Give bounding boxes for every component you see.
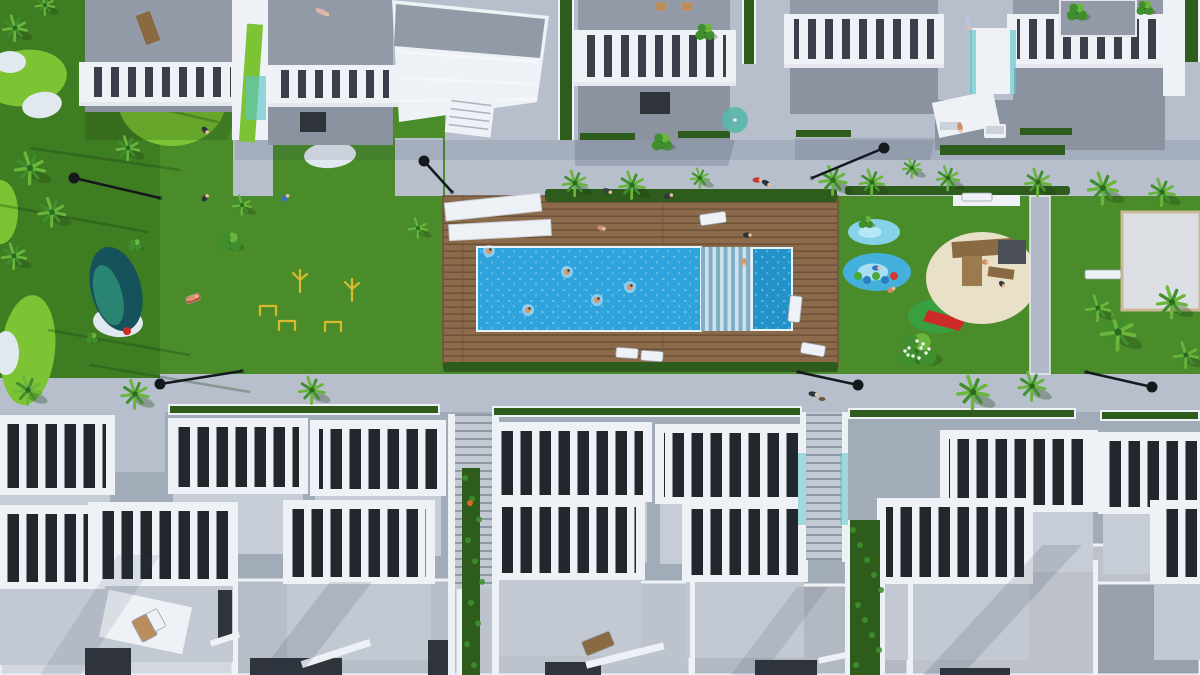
caterpillar-play-toy bbox=[863, 276, 871, 284]
rooftop bbox=[790, 0, 938, 14]
bush-foliage bbox=[1137, 7, 1145, 15]
bush-foliage bbox=[219, 240, 230, 251]
palm-crown bbox=[49, 209, 55, 215]
caterpillar-play-toy bbox=[872, 272, 880, 280]
terrace bbox=[268, 103, 393, 145]
bush-foliage bbox=[654, 134, 663, 143]
palm-crown bbox=[910, 166, 914, 170]
person-head bbox=[748, 233, 752, 237]
red-ball bbox=[123, 327, 131, 335]
townhouse-pergola-row1-slats bbox=[949, 439, 1089, 505]
parasol-pole bbox=[733, 118, 737, 122]
townhouse-pergola-row2-slats bbox=[691, 509, 799, 575]
person-head bbox=[877, 266, 881, 270]
bush-foliage bbox=[86, 337, 92, 343]
sun-lounger bbox=[641, 350, 664, 362]
road-planter-hedge bbox=[170, 406, 438, 413]
hedge-strip-vertical bbox=[1185, 0, 1198, 62]
hedge-strip bbox=[580, 133, 635, 140]
outdoor-stairs bbox=[445, 92, 496, 137]
lamp-head bbox=[155, 379, 166, 390]
row2-roof bbox=[497, 576, 641, 656]
townhouse-pergola-row1-slats bbox=[664, 433, 799, 497]
lamp-head bbox=[69, 173, 80, 184]
bush-foliage bbox=[695, 30, 705, 40]
row2-roof bbox=[1154, 580, 1200, 660]
palm-crown bbox=[629, 182, 634, 187]
palm-crown bbox=[1169, 299, 1175, 305]
person-head bbox=[986, 260, 990, 264]
palm-crown bbox=[240, 203, 244, 207]
townhouse-pergola-row1-slats bbox=[177, 427, 299, 487]
white-flower bbox=[921, 342, 924, 345]
sofa-cushion bbox=[940, 122, 958, 130]
stairwell-wall bbox=[845, 520, 850, 675]
swimmer-head bbox=[489, 248, 491, 250]
glass-balustrade bbox=[970, 30, 976, 94]
bush-foliage bbox=[130, 240, 136, 246]
lamp-base bbox=[158, 196, 162, 200]
orange-flower bbox=[467, 500, 473, 506]
scene-canvas bbox=[0, 0, 1200, 675]
palm-crown bbox=[1029, 383, 1035, 389]
stairwell-plant bbox=[475, 620, 481, 626]
main-pool-water-texture bbox=[477, 247, 701, 331]
white-flower bbox=[911, 354, 914, 357]
bush-foliage bbox=[1069, 4, 1078, 13]
stairwell-plant bbox=[878, 587, 884, 593]
road-planter-hedge bbox=[850, 410, 1074, 417]
palm-crown bbox=[12, 25, 17, 30]
white-flower bbox=[924, 351, 927, 354]
palm-crown bbox=[869, 179, 874, 184]
townhouse-pergola-row1-slats bbox=[1107, 441, 1200, 507]
palm-crown bbox=[126, 146, 131, 151]
hedge-strip bbox=[1020, 128, 1072, 135]
townhouse-pergola-row2-slats bbox=[0, 514, 96, 582]
doorway-opening bbox=[640, 92, 670, 114]
white-wall bbox=[1163, 0, 1185, 96]
white-flower bbox=[919, 346, 922, 349]
bush-foliage bbox=[859, 221, 866, 228]
sun-lounger bbox=[788, 295, 803, 322]
palm-crown bbox=[970, 389, 976, 395]
caterpillar-play-toy bbox=[881, 276, 889, 284]
road-planter-hedge bbox=[494, 408, 800, 415]
stairwell-plant bbox=[479, 579, 485, 585]
stairwell-plant bbox=[871, 572, 877, 578]
lamp-head bbox=[1147, 382, 1158, 393]
palm-crown bbox=[43, 3, 47, 7]
roof-separator-wall bbox=[690, 582, 695, 675]
white-flower bbox=[907, 346, 910, 349]
rooftop bbox=[85, 0, 235, 62]
lamp-base bbox=[1084, 370, 1088, 374]
white-flower bbox=[906, 353, 909, 356]
bush-foliage bbox=[652, 140, 662, 150]
lamp-base bbox=[240, 369, 244, 373]
doorway-opening bbox=[300, 112, 326, 132]
building-shadow bbox=[85, 112, 235, 140]
stairwell-plant bbox=[864, 557, 870, 563]
pergola-slats bbox=[794, 19, 934, 59]
stairwell-plant bbox=[853, 662, 859, 668]
stairwell-plant bbox=[850, 527, 856, 533]
roof-separator-wall bbox=[1093, 560, 1098, 675]
pergola-slats bbox=[582, 35, 726, 77]
sun-lounger bbox=[655, 2, 667, 11]
caterpillar-play-toy bbox=[890, 272, 898, 280]
swimmer-head bbox=[567, 269, 569, 271]
aerial-render-residential-complex bbox=[0, 0, 1200, 675]
stairwell-plant bbox=[468, 600, 474, 606]
lamp-base bbox=[810, 176, 814, 180]
lamp-head bbox=[879, 143, 890, 154]
dark-opening bbox=[428, 640, 448, 675]
bush-foliage bbox=[1067, 10, 1077, 20]
hedge-strip-vertical bbox=[560, 0, 572, 140]
swimmer-head bbox=[597, 297, 599, 299]
road-planter-hedge bbox=[1102, 412, 1198, 419]
palm-crown bbox=[698, 176, 702, 180]
bush-foliage bbox=[88, 333, 93, 338]
bush-foliage bbox=[222, 233, 231, 242]
palm-crown bbox=[1183, 352, 1188, 357]
palm-crown bbox=[25, 387, 31, 393]
stairwell-plant bbox=[471, 662, 477, 668]
stairwell-plant bbox=[869, 632, 875, 638]
caterpillar-play-toy bbox=[854, 272, 862, 280]
lamp-base bbox=[796, 370, 800, 374]
bush-foliage bbox=[1139, 1, 1146, 8]
wooden-play-structure bbox=[998, 240, 1026, 264]
dark-opening bbox=[218, 590, 232, 638]
sofa-cushion bbox=[986, 126, 1004, 134]
person-head bbox=[759, 178, 763, 182]
glass-balustrade bbox=[1010, 30, 1016, 94]
palm-crown bbox=[11, 253, 16, 258]
stairwell-plant bbox=[462, 475, 468, 481]
townhouse-pergola-row1-slats bbox=[497, 431, 643, 495]
terrace bbox=[790, 64, 938, 114]
townhouse-pergola-row1-slats bbox=[0, 424, 106, 488]
palm-crown bbox=[830, 177, 836, 183]
stairwell-plant bbox=[465, 537, 471, 543]
sun-lounger bbox=[681, 2, 693, 11]
deck-hedge bbox=[443, 362, 838, 372]
hedge-strip bbox=[796, 130, 851, 137]
rooftop bbox=[268, 0, 393, 65]
palm-crown bbox=[27, 165, 33, 171]
white-flower bbox=[917, 356, 920, 359]
swimmer-head bbox=[528, 307, 530, 309]
townhouse-pergola-row2-slats bbox=[292, 509, 426, 577]
stairwell-plant bbox=[472, 558, 478, 564]
stair-glass-balustrade bbox=[840, 453, 848, 525]
white-flower bbox=[903, 349, 906, 352]
palm-crown bbox=[1159, 189, 1164, 194]
bush-foliage bbox=[128, 244, 135, 251]
white-wall bbox=[972, 28, 1014, 94]
garden-bench bbox=[1085, 270, 1121, 279]
white-flower bbox=[915, 339, 918, 342]
pergola-slats bbox=[272, 70, 389, 98]
townhouse-pergola-row2-slats bbox=[886, 507, 1024, 577]
stairwell-plant bbox=[857, 542, 863, 548]
sun-lounger bbox=[616, 347, 639, 359]
pergola-slats bbox=[89, 67, 231, 97]
pergola-sill bbox=[262, 103, 399, 107]
glass-balustrade bbox=[246, 76, 266, 120]
bush-foliage bbox=[698, 24, 706, 32]
stairwell-plant bbox=[464, 641, 470, 647]
stairwell-wall bbox=[448, 414, 455, 675]
pergola-sill bbox=[79, 102, 241, 106]
garden-bench bbox=[962, 193, 992, 201]
hedge-strip bbox=[678, 131, 730, 138]
pergola-sill bbox=[784, 64, 944, 68]
palm-crown bbox=[1035, 179, 1040, 184]
pergola-sill bbox=[572, 82, 736, 86]
stairwell-plant bbox=[855, 602, 861, 608]
kids-pool-water-texture bbox=[752, 248, 792, 330]
townhouse-pergola-row1-slats bbox=[319, 429, 437, 489]
stairwell-planting-strip bbox=[850, 520, 880, 675]
stairwell-plant bbox=[476, 517, 482, 523]
dog bbox=[819, 397, 826, 401]
palm-crown bbox=[946, 176, 951, 181]
swimmer-head bbox=[630, 284, 632, 286]
stairwell-plant bbox=[876, 647, 882, 653]
person-head bbox=[742, 263, 746, 267]
stairwell-steps bbox=[806, 412, 842, 560]
pergola-sill bbox=[1007, 64, 1171, 68]
bush-foliage bbox=[861, 216, 867, 222]
lamp-head bbox=[853, 380, 864, 391]
lamp-head bbox=[419, 156, 430, 167]
palm-crown bbox=[309, 387, 314, 392]
lamp-base bbox=[450, 190, 454, 194]
townhouse-pergola-row2-slats bbox=[502, 507, 636, 573]
palm-crown bbox=[1115, 329, 1122, 336]
wooden-play-structure bbox=[962, 256, 982, 286]
garden-divider-wall bbox=[1030, 196, 1050, 374]
palm-crown bbox=[132, 391, 138, 397]
stairwell-plant bbox=[862, 617, 868, 623]
townhouse-pergola-row2-slats bbox=[1159, 509, 1200, 577]
stairwell-wall bbox=[492, 414, 499, 675]
hedge-strip-vertical bbox=[744, 0, 754, 64]
palm-crown bbox=[1100, 185, 1106, 191]
palm-crown bbox=[572, 180, 577, 185]
white-flower bbox=[927, 347, 930, 350]
palm-crown bbox=[416, 226, 420, 230]
terrace-planter bbox=[940, 145, 1065, 155]
palm-crown bbox=[1095, 305, 1100, 310]
stair-glass-balustrade bbox=[798, 453, 806, 525]
